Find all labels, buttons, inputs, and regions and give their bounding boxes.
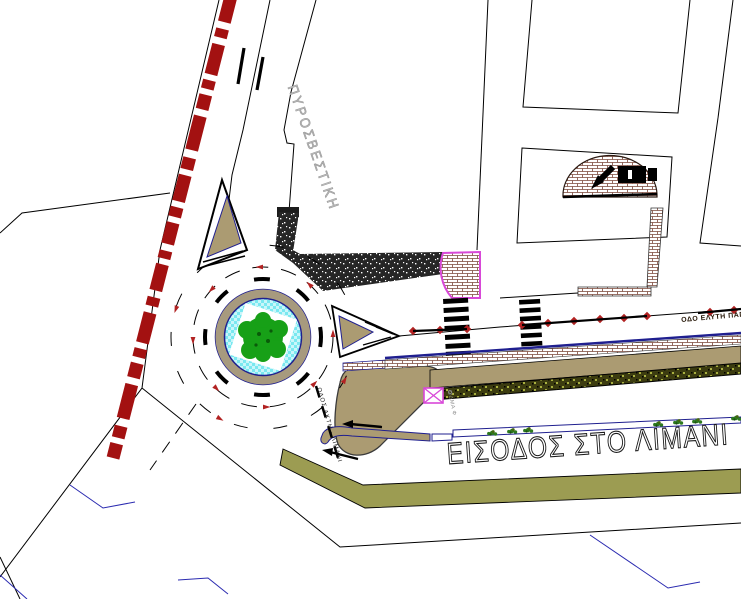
warehouse-buildings (517, 0, 741, 246)
north-street (228, 0, 270, 208)
brick-path (500, 208, 663, 298)
brick-corner-pad (441, 252, 480, 298)
southwest-lane-markings (150, 386, 338, 470)
island-northwest (198, 180, 247, 269)
site-plan-canvas (0, 0, 741, 599)
stippled-sidewalk (275, 212, 443, 291)
site-plan: ΠΥΡΟΣΒΕΣΤΙΚΗ ΕΙΣΟΔΟΣ ΣΤΟ ΛΙΜΑΝΙ ΟΔΟ ΕΛΥΤ… (0, 0, 741, 599)
dome-forecourt (563, 155, 657, 197)
island-east (332, 306, 399, 357)
parcel-boundary-lines (0, 0, 741, 599)
